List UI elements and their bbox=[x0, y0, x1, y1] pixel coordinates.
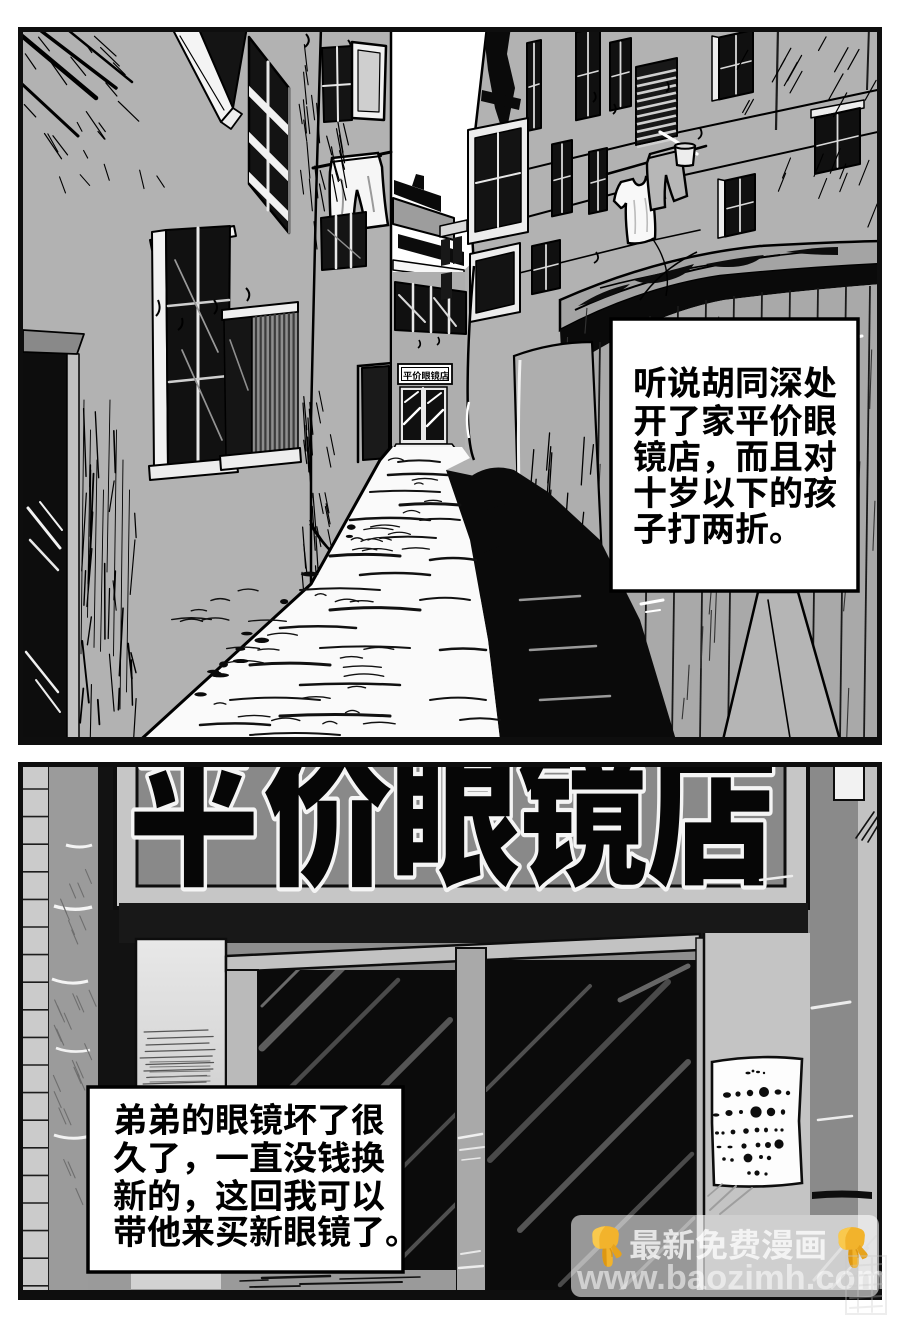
svg-text:www.baozimh.com: www.baozimh.com bbox=[576, 1259, 886, 1297]
